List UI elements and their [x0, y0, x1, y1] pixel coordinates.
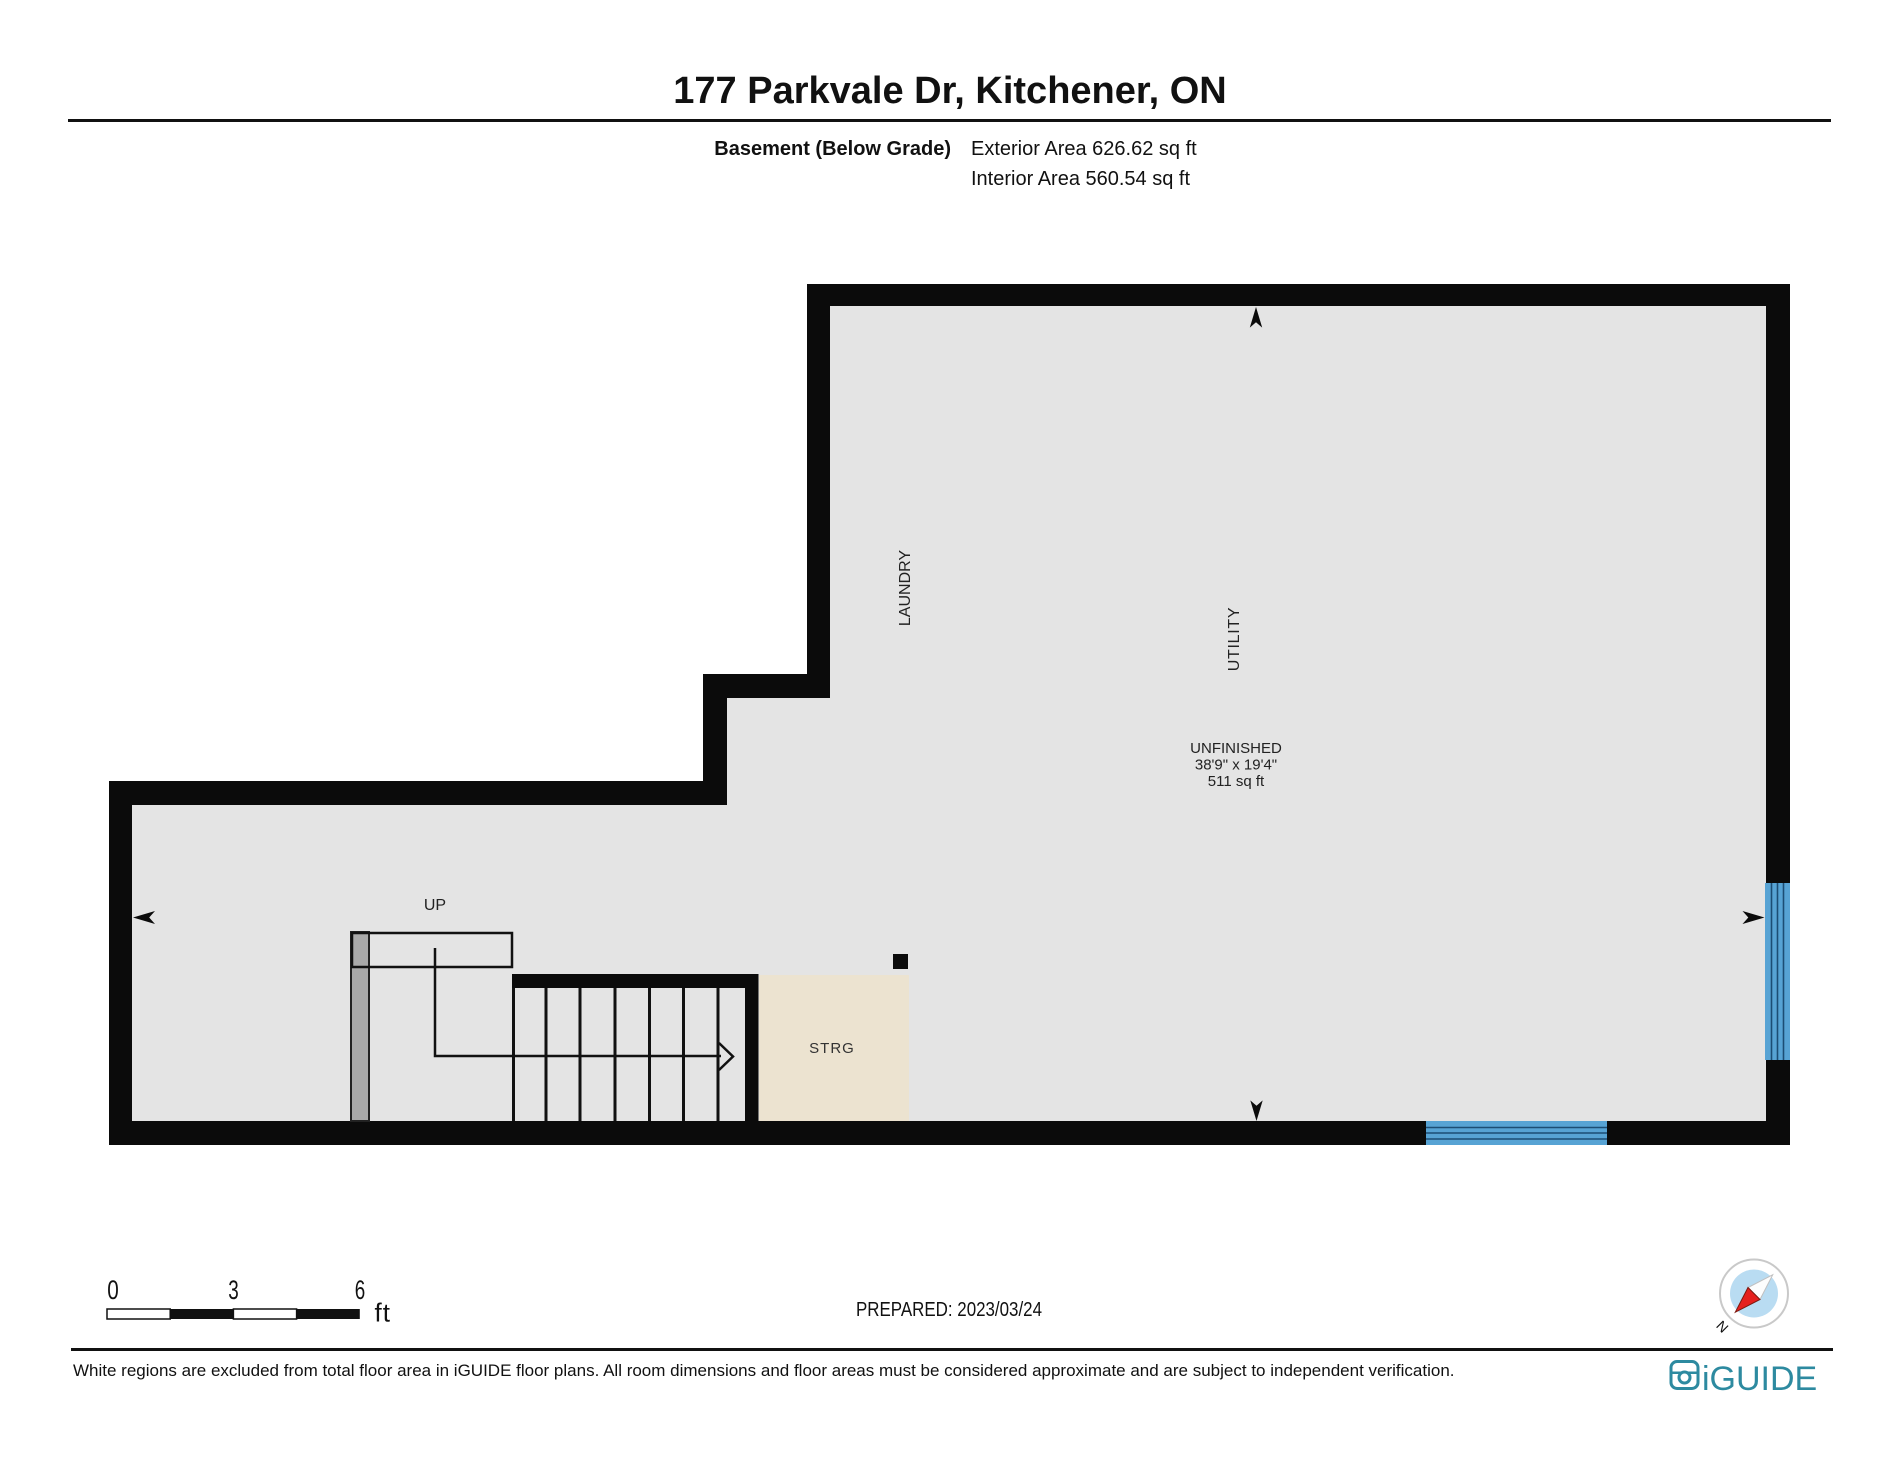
svg-text:Exterior Area 626.62 sq ft: Exterior Area 626.62 sq ft [971, 138, 1197, 160]
svg-text:N: N [1713, 1317, 1731, 1335]
svg-text:UNFINISHED: UNFINISHED [1190, 740, 1282, 757]
svg-text:6: 6 [355, 1275, 366, 1305]
svg-text:White regions are excluded fro: White regions are excluded from total fl… [73, 1361, 1455, 1380]
svg-text:ft: ft [375, 1298, 391, 1328]
svg-text:3: 3 [228, 1275, 239, 1305]
svg-text:38'9" x 19'4": 38'9" x 19'4" [1195, 757, 1277, 774]
svg-text:PREPARED: 2023/03/24: PREPARED: 2023/03/24 [856, 1299, 1042, 1321]
svg-text:Interior Area 560.54 sq ft: Interior Area 560.54 sq ft [971, 168, 1190, 190]
svg-text:511 sq ft: 511 sq ft [1208, 773, 1265, 790]
svg-text:iGUIDE: iGUIDE [1702, 1360, 1817, 1398]
svg-text:Basement (Below Grade): Basement (Below Grade) [714, 138, 951, 160]
svg-text:UP: UP [424, 897, 446, 914]
svg-text:LAUNDRY: LAUNDRY [897, 550, 914, 627]
svg-text:STRG: STRG [809, 1040, 855, 1057]
svg-text:UTILITY: UTILITY [1226, 607, 1243, 671]
svg-text:177 Parkvale Dr, Kitchener, ON: 177 Parkvale Dr, Kitchener, ON [673, 70, 1226, 112]
svg-text:0: 0 [107, 1275, 119, 1305]
